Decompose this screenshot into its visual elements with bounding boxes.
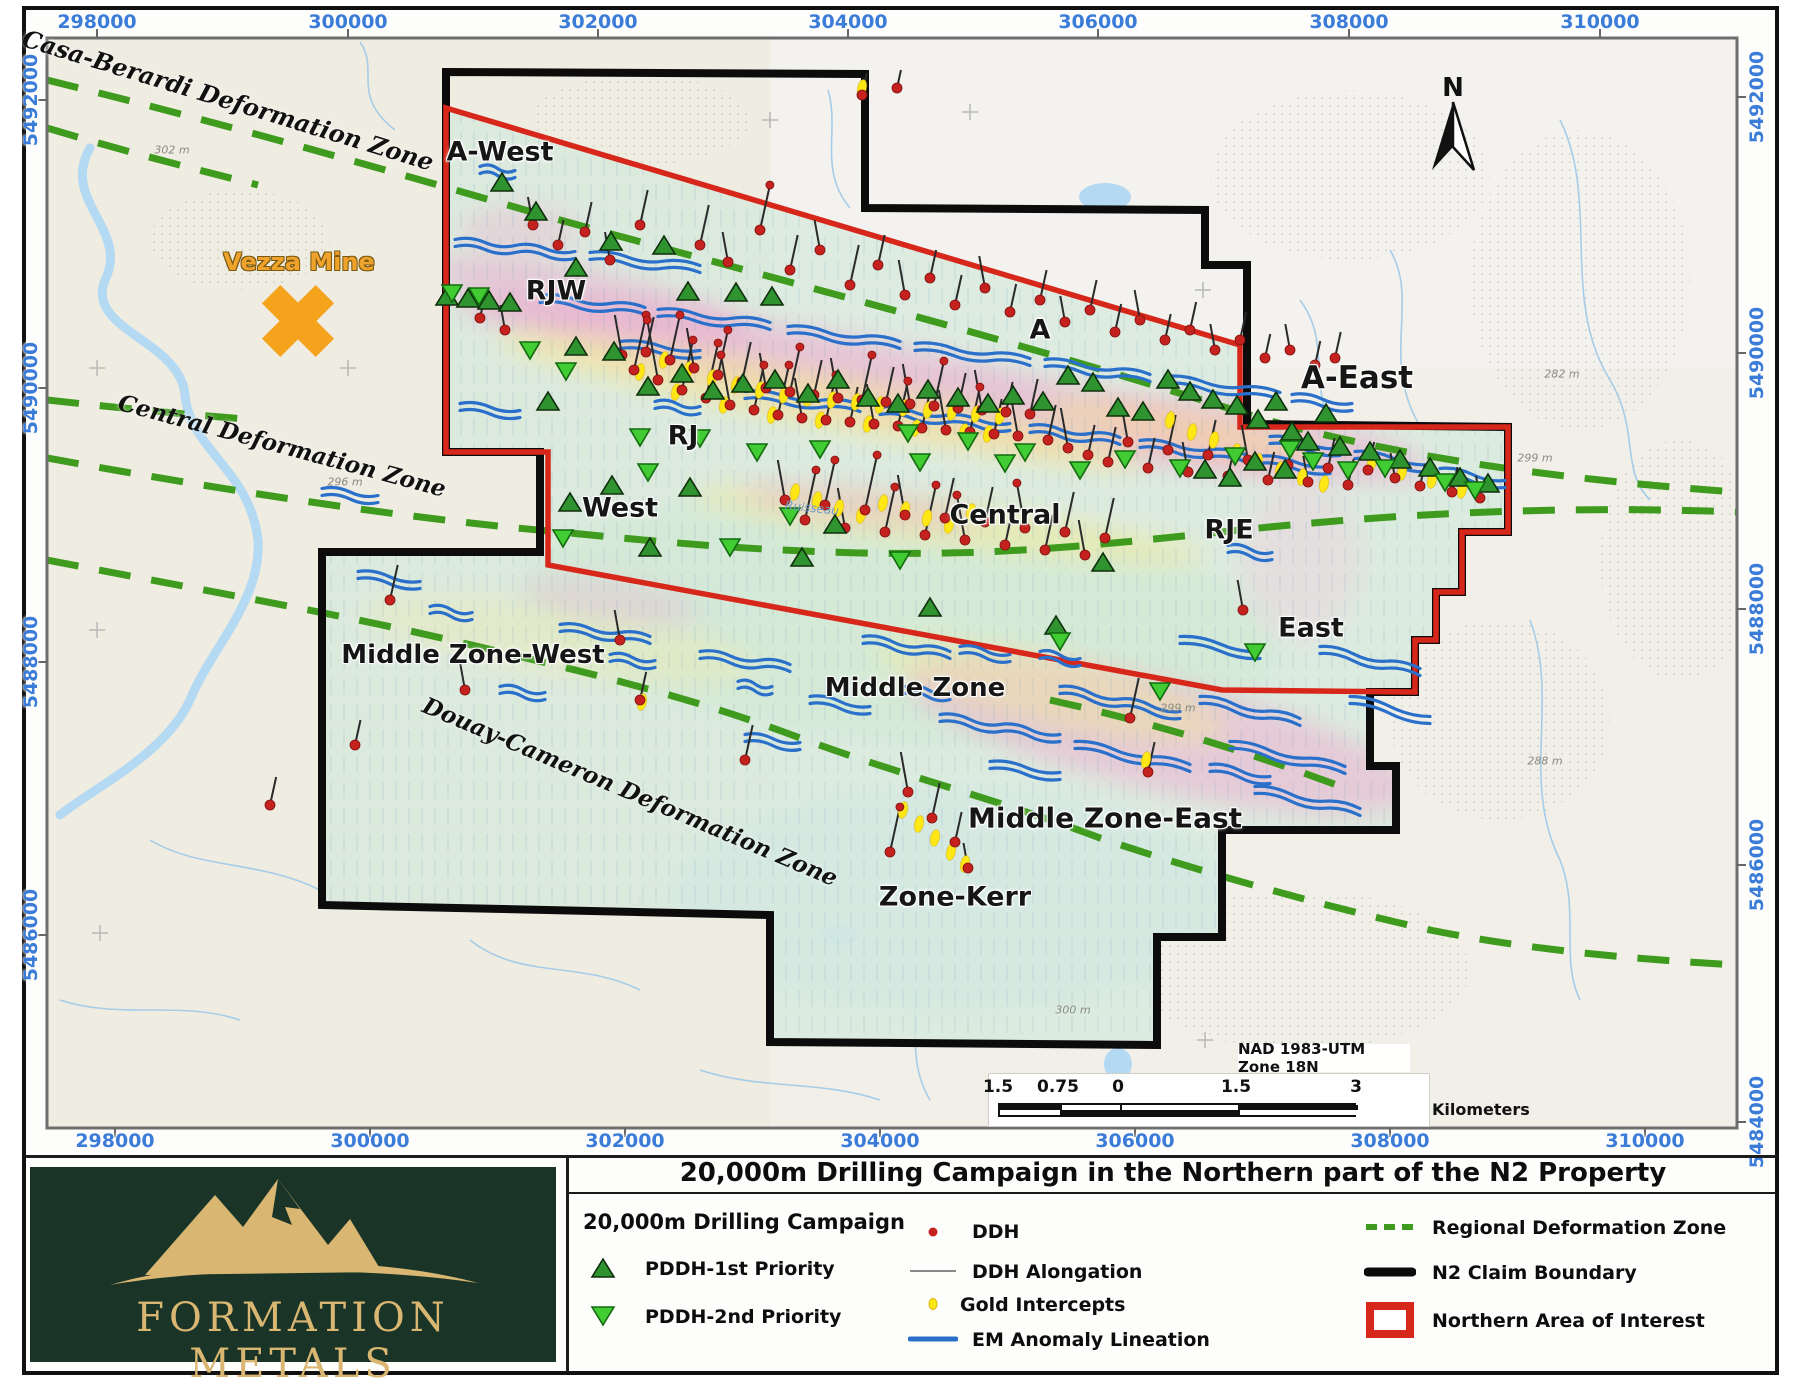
legend-item-label: PDDH-2nd Priority bbox=[645, 1306, 841, 1328]
legend-left-divider bbox=[566, 1155, 569, 1372]
north-arrow-icon: N bbox=[1418, 72, 1488, 177]
scale-tick bbox=[1060, 1105, 1062, 1115]
company-name: FORMATION METALS bbox=[30, 1295, 556, 1387]
scale-tick bbox=[1120, 1105, 1122, 1115]
scale-number: 3 bbox=[1350, 1077, 1362, 1097]
northing-label-right: 5490000 bbox=[1746, 307, 1768, 400]
regional-deformation-icon bbox=[1364, 1218, 1416, 1236]
zone-label: Middle Zone-West bbox=[341, 640, 604, 670]
zone-label: East bbox=[1278, 613, 1344, 644]
elevation-label: 296 m bbox=[327, 476, 362, 489]
map-figure: 2980003000003020003040003060003080003100… bbox=[0, 0, 1800, 1390]
northing-label-left: 5490000 bbox=[20, 342, 42, 435]
elevation-label: 300 m bbox=[1055, 1004, 1090, 1017]
elevation-label: 282 m bbox=[1544, 368, 1579, 381]
scale-number: 0.75 bbox=[1037, 1077, 1079, 1097]
elevation-label: 299 m bbox=[1517, 452, 1552, 465]
gold-intercepts-icon bbox=[920, 1294, 946, 1314]
elevation-label: 299 m bbox=[1160, 702, 1195, 715]
easting-label-bottom: 302000 bbox=[585, 1130, 664, 1152]
pddh-1st-priority-icon bbox=[590, 1256, 616, 1280]
pddh-2nd-priority-icon bbox=[590, 1304, 616, 1328]
zone-label: A bbox=[1030, 315, 1051, 346]
zone-label: Middle Zone-East bbox=[968, 802, 1242, 835]
scale-segment bbox=[1000, 1110, 1060, 1115]
easting-label-bottom: 310000 bbox=[1605, 1130, 1684, 1152]
easting-label-top: 310000 bbox=[1560, 11, 1639, 33]
legend-item-label: Gold Intercepts bbox=[960, 1294, 1125, 1316]
legend-title-underline bbox=[566, 1192, 1777, 1194]
legend-item-label: DDH Alongation bbox=[972, 1261, 1142, 1283]
easting-label-bottom: 308000 bbox=[1350, 1130, 1429, 1152]
easting-label-top: 302000 bbox=[558, 11, 637, 33]
easting-label-top: 306000 bbox=[1058, 11, 1137, 33]
datum-note: NAD 1983-UTM Zone 18N bbox=[1238, 1044, 1410, 1072]
scale-segment bbox=[1238, 1110, 1358, 1115]
legend-item-label: Northern Area of Interest bbox=[1432, 1310, 1705, 1332]
northing-label-right: 5488000 bbox=[1746, 563, 1768, 656]
north-label: N bbox=[1442, 73, 1464, 103]
easting-label-bottom: 306000 bbox=[1095, 1130, 1174, 1152]
company-logo: FORMATION METALS bbox=[30, 1167, 556, 1362]
scale-number: 0 bbox=[1112, 1077, 1124, 1097]
scale-tick bbox=[1238, 1105, 1240, 1115]
zone-label: West bbox=[582, 493, 658, 524]
easting-label-top: 308000 bbox=[1309, 11, 1388, 33]
zone-label: A-East bbox=[1301, 360, 1413, 396]
northing-label-left: 5492000 bbox=[20, 54, 42, 147]
northing-label-right: 5492000 bbox=[1746, 51, 1768, 144]
elevation-label: 288 m bbox=[1527, 755, 1562, 768]
logo-mountains-icon bbox=[30, 1167, 556, 1297]
scale-unit-label: Kilometers bbox=[1432, 1100, 1530, 1119]
easting-label-top: 298000 bbox=[57, 11, 136, 33]
area-of-interest-icon bbox=[1364, 1300, 1416, 1340]
zone-label: RJW bbox=[526, 276, 587, 307]
northing-label-left: 5486000 bbox=[20, 889, 42, 982]
easting-label-bottom: 298000 bbox=[75, 1130, 154, 1152]
scale-segment bbox=[1060, 1110, 1120, 1115]
zone-label: Zone-Kerr bbox=[879, 882, 1031, 913]
easting-label-bottom: 304000 bbox=[840, 1130, 919, 1152]
legend-subheader: 20,000m Drilling Campaign bbox=[583, 1210, 905, 1234]
easting-label-top: 300000 bbox=[308, 11, 387, 33]
northing-label-left: 5488000 bbox=[20, 616, 42, 709]
ddh-icon bbox=[920, 1222, 946, 1242]
elevation-label: 302 m bbox=[154, 144, 189, 157]
northing-label-right: 5486000 bbox=[1746, 819, 1768, 912]
zone-label: Middle Zone bbox=[825, 673, 1005, 703]
zone-label: RJ bbox=[668, 421, 699, 452]
zone-label: A-West bbox=[447, 137, 554, 168]
legend-item-label: N2 Claim Boundary bbox=[1432, 1262, 1637, 1284]
em-anomaly-icon bbox=[908, 1330, 958, 1348]
scale-segment bbox=[1120, 1110, 1238, 1115]
legend-title: 20,000m Drilling Campaign in the Norther… bbox=[570, 1158, 1776, 1190]
legend-item-label: DDH bbox=[972, 1221, 1019, 1243]
legend-item-label: EM Anomaly Lineation bbox=[972, 1329, 1210, 1351]
easting-label-top: 304000 bbox=[808, 11, 887, 33]
legend-item-label: PDDH-1st Priority bbox=[645, 1258, 835, 1280]
legend-item-label: Regional Deformation Zone bbox=[1432, 1217, 1726, 1239]
ddh-alongation-icon bbox=[908, 1262, 958, 1280]
scale-number: 1.5 bbox=[1221, 1077, 1251, 1097]
scale-bar bbox=[998, 1103, 1356, 1117]
vezza-mine-label: Vezza Mine bbox=[223, 248, 375, 276]
zone-label: Central bbox=[949, 500, 1060, 531]
scale-number: 1.5 bbox=[983, 1077, 1013, 1097]
zone-label: RJE bbox=[1204, 515, 1253, 546]
easting-label-bottom: 300000 bbox=[330, 1130, 409, 1152]
claim-boundary-icon bbox=[1364, 1262, 1416, 1282]
